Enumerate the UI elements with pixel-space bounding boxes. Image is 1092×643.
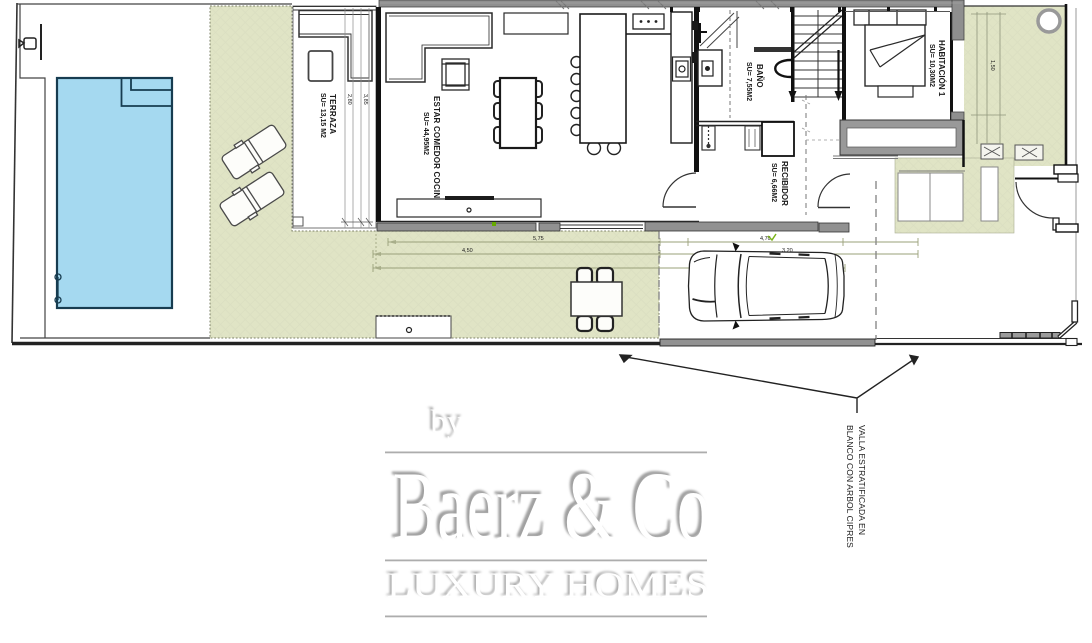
svg-text:by: by [431, 405, 465, 441]
svg-text:2,80: 2,80 [346, 94, 352, 105]
svg-text:SU= 44,95M2: SU= 44,95M2 [422, 112, 429, 155]
svg-text:TERRAZA: TERRAZA [328, 94, 337, 134]
svg-text:LUXURY HOMES: LUXURY HOMES [387, 565, 709, 605]
svg-text:BLANCO CON ARBOL CIPRES: BLANCO CON ARBOL CIPRES [845, 425, 855, 548]
svg-text:HABITACIÓN 1: HABITACIÓN 1 [937, 40, 946, 97]
svg-text:SU= 13,15 M2: SU= 13,15 M2 [319, 93, 326, 138]
svg-text:VALLA ESTRATIFICADA EN: VALLA ESTRATIFICADA EN [857, 425, 867, 535]
svg-text:BAÑO: BAÑO [755, 64, 764, 88]
svg-text:5,75: 5,75 [533, 236, 544, 242]
svg-text:Baerz & Co: Baerz & Co [393, 451, 710, 562]
svg-text:RECIBIDOR: RECIBIDOR [780, 161, 789, 206]
svg-text:3,85: 3,85 [362, 94, 368, 105]
svg-text:ESTAR COMEDOR COCINA: ESTAR COMEDOR COCINA [432, 96, 441, 204]
svg-text:4,50: 4,50 [462, 248, 473, 254]
svg-text:SU= 7,55M2: SU= 7,55M2 [745, 62, 752, 101]
svg-text:SU= 6,66M2: SU= 6,66M2 [770, 163, 777, 202]
svg-text:1,50: 1,50 [989, 60, 995, 71]
svg-text:SU= 10,30M2: SU= 10,30M2 [928, 44, 935, 87]
